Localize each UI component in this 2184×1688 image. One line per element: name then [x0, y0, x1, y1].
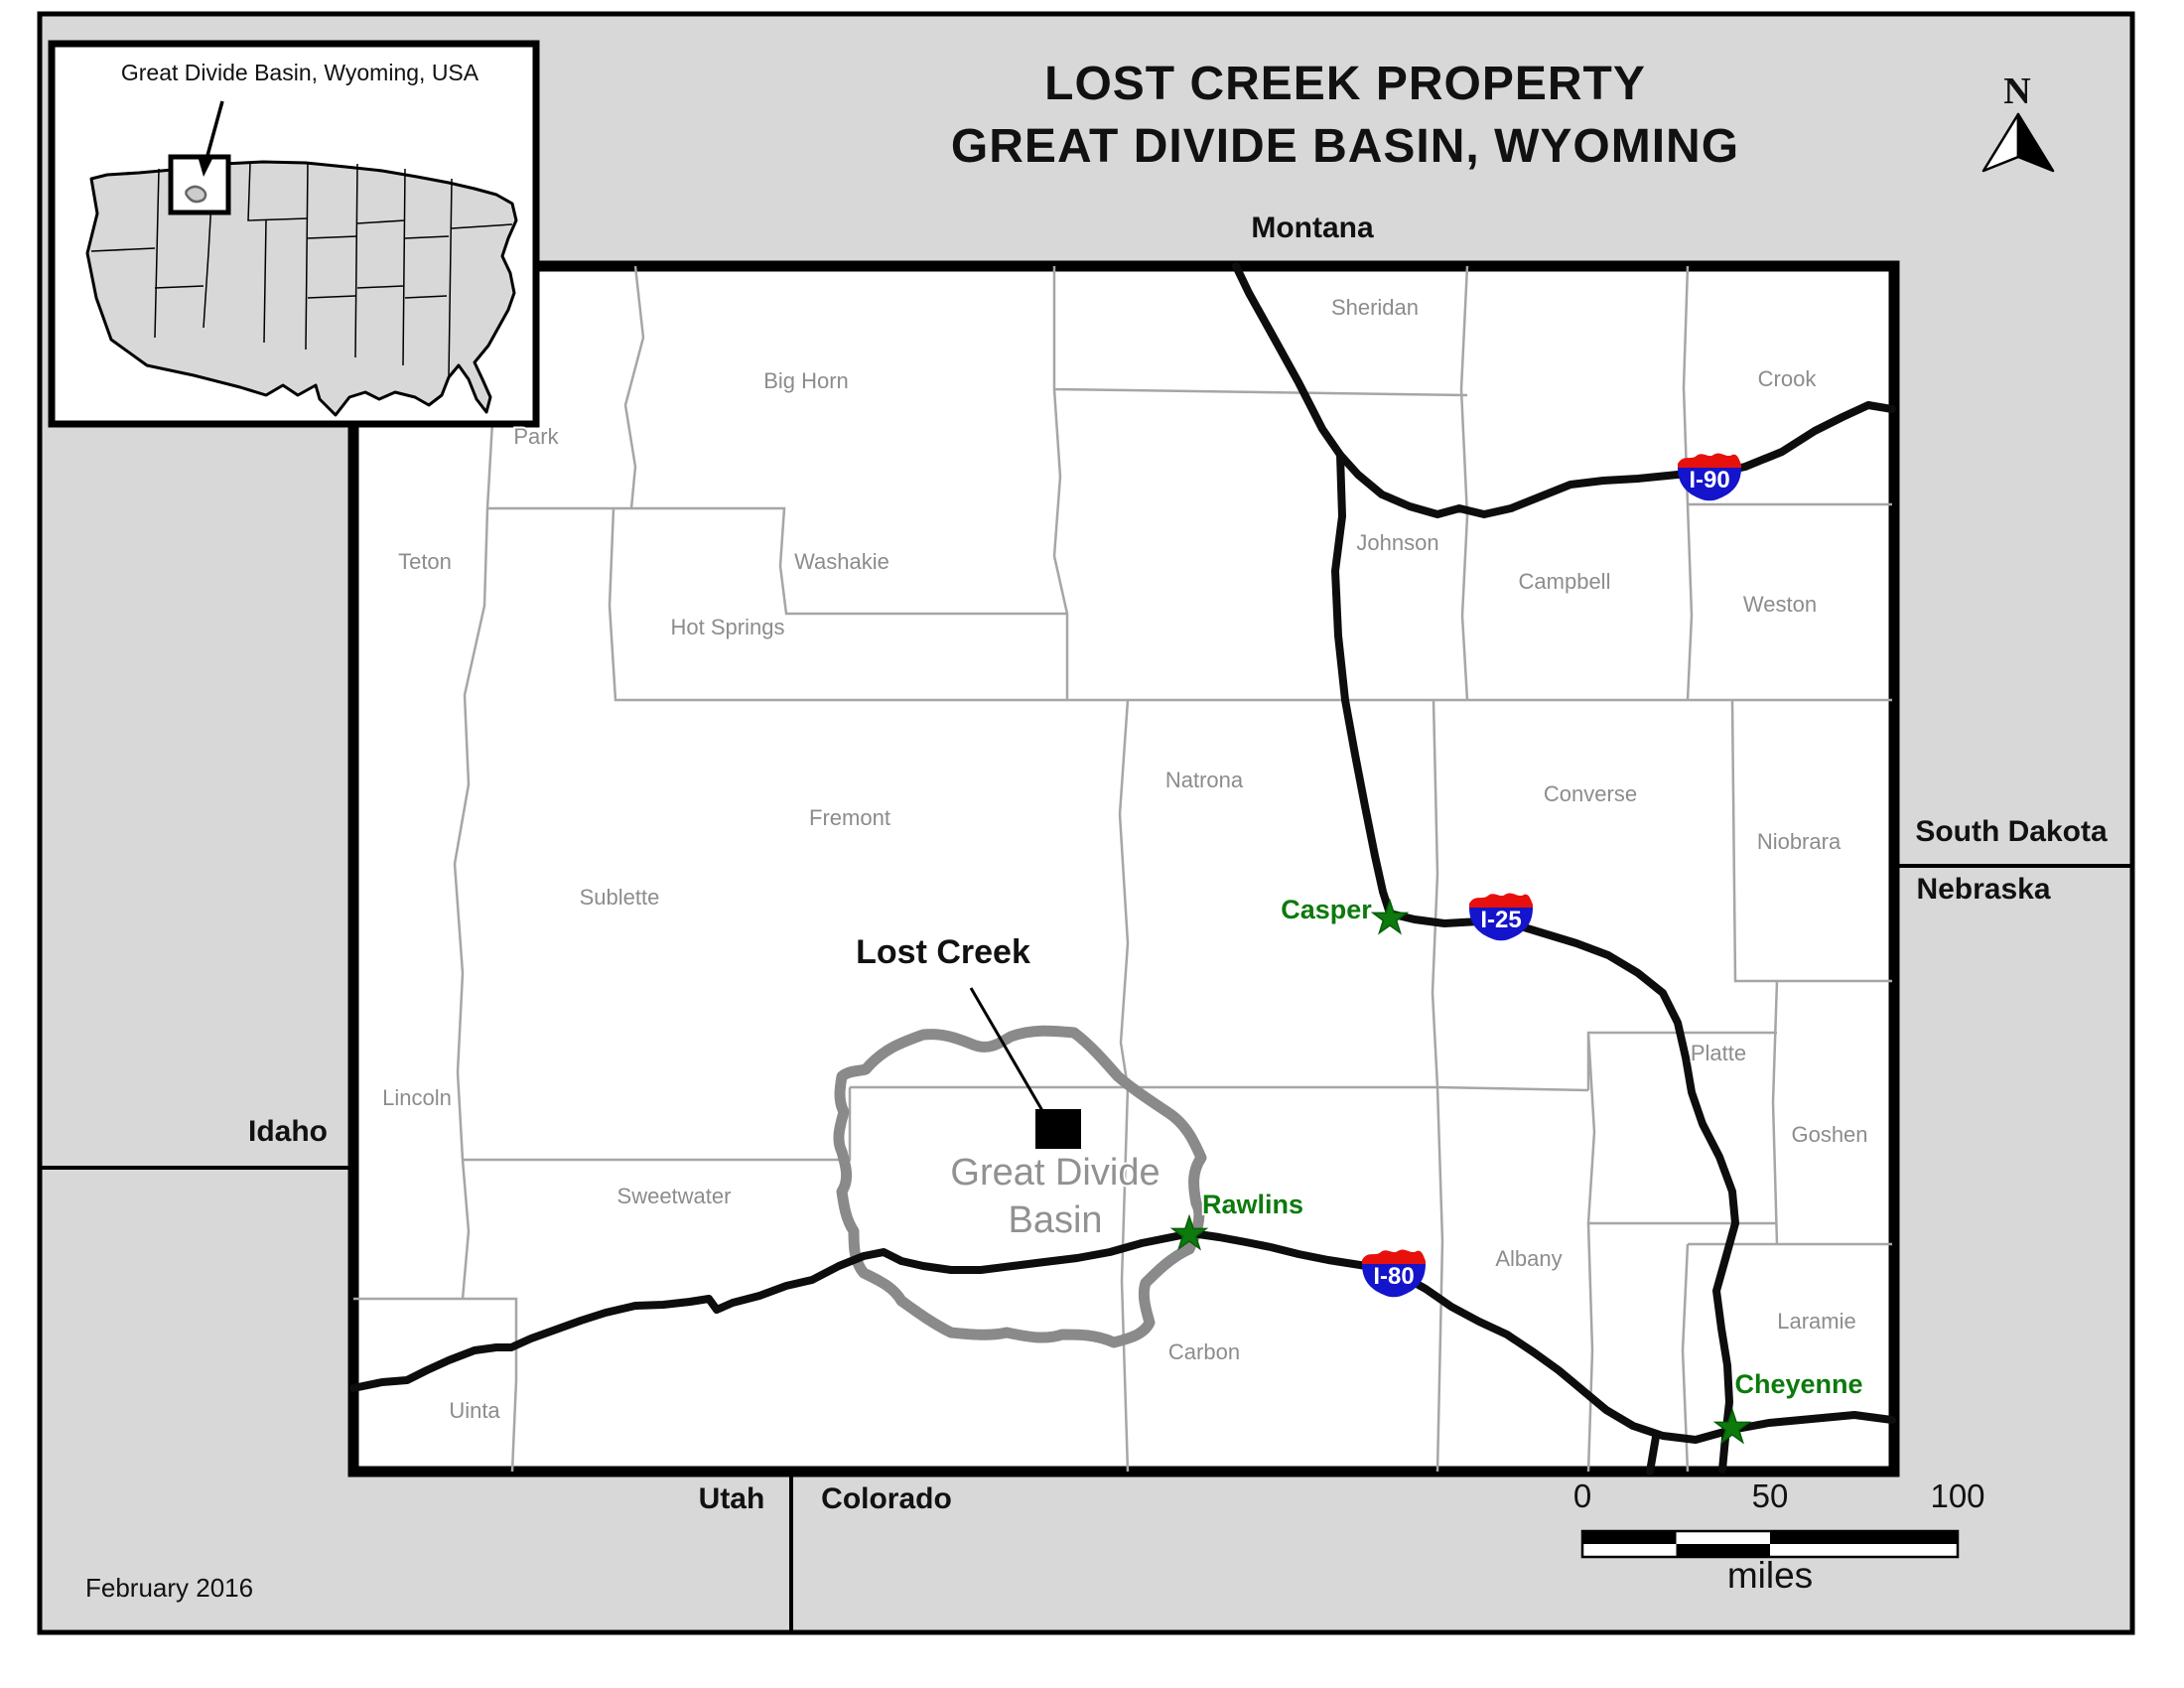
label-johnson: Johnson [1356, 530, 1438, 555]
label-goshen: Goshen [1791, 1122, 1867, 1147]
label-n: N [2003, 70, 2030, 112]
label-hot-springs: Hot Springs [671, 615, 785, 639]
label-lost-creek-property: LOST CREEK PROPERTY [1044, 58, 1646, 110]
label-niobrara: Niobrara [1757, 829, 1842, 854]
scale-bar [1582, 1531, 1958, 1557]
label-uinta: Uinta [449, 1398, 500, 1423]
label-0: 0 [1573, 1477, 1591, 1514]
inset-wyoming-box [171, 157, 228, 212]
label-basin: Basin [1008, 1199, 1102, 1241]
label-miles: miles [1727, 1555, 1813, 1596]
highway-shield-label-i-90: I-90 [1689, 467, 1729, 493]
highway-shield-label-i-80: I-80 [1373, 1263, 1414, 1290]
inset-usa-map [52, 44, 536, 424]
label-laramie: Laramie [1777, 1309, 1855, 1334]
label-great-divide: Great Divide [950, 1152, 1160, 1194]
label-converse: Converse [1544, 781, 1637, 806]
highway-shield-label-i-25: I-25 [1480, 907, 1521, 933]
label-big-horn: Big Horn [763, 368, 849, 393]
label-nebraska: Nebraska [1916, 873, 2050, 906]
lost-creek-map: I-90I-25I-80 CasperRawlinsCheyenne LOST … [0, 0, 2184, 1688]
label-washakie: Washakie [794, 549, 889, 574]
label-platte: Platte [1691, 1041, 1746, 1065]
label-sublette: Sublette [580, 885, 660, 910]
label-park: Park [513, 424, 559, 449]
label-natrona: Natrona [1165, 768, 1244, 792]
label-great-divide-basin-wyoming-usa: Great Divide Basin, Wyoming, USA [121, 60, 479, 85]
label-teton: Teton [398, 549, 452, 574]
label-50: 50 [1752, 1477, 1789, 1514]
label-weston: Weston [1743, 592, 1817, 617]
label-campbell: Campbell [1519, 569, 1611, 594]
label-lincoln: Lincoln [382, 1085, 452, 1110]
inset-basin-blob [186, 187, 205, 202]
label-fremont: Fremont [809, 805, 890, 830]
label-sheridan: Sheridan [1331, 295, 1419, 320]
label-great-divide-basin-wyoming: GREAT DIVIDE BASIN, WYOMING [951, 120, 1739, 173]
label-lost-creek: Lost Creek [856, 933, 1030, 971]
label-sweetwater: Sweetwater [617, 1184, 732, 1208]
lost-creek-site-square [1035, 1109, 1081, 1149]
label-south-dakota: South Dakota [1915, 815, 2108, 848]
label-albany: Albany [1495, 1246, 1562, 1271]
label-utah: Utah [699, 1482, 765, 1515]
map-document: I-90I-25I-80 CasperRawlinsCheyenne LOST … [0, 0, 2184, 1688]
label-crook: Crook [1758, 366, 1818, 391]
label-february-2016: February 2016 [85, 1573, 253, 1603]
label-colorado: Colorado [821, 1482, 952, 1515]
city-label-rawlins: Rawlins [1202, 1190, 1303, 1219]
city-label-cheyenne: Cheyenne [1734, 1369, 1862, 1399]
label-100: 100 [1930, 1477, 1984, 1514]
label-montana: Montana [1251, 211, 1374, 244]
city-label-casper: Casper [1281, 895, 1372, 924]
label-idaho: Idaho [248, 1115, 328, 1148]
label-carbon: Carbon [1168, 1339, 1240, 1364]
